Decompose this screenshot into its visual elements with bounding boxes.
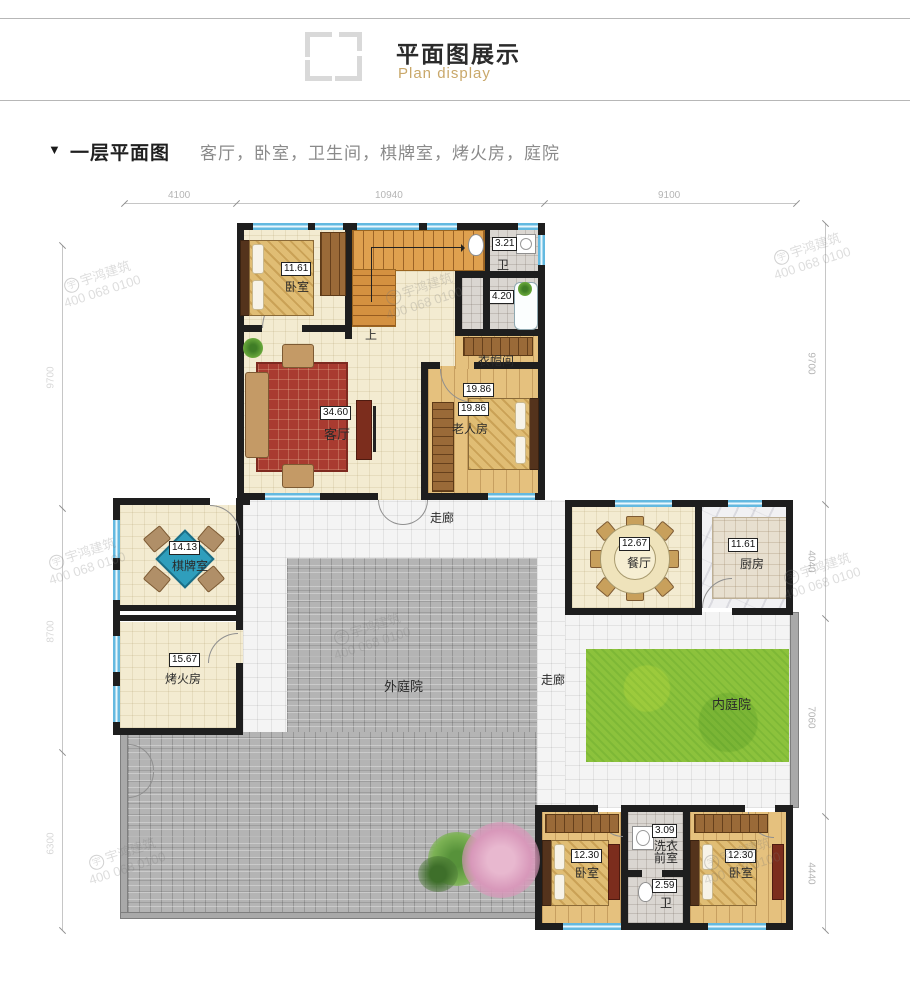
name-outer-yard: 外庭院 — [384, 676, 423, 695]
dim-top-2: 10940 — [375, 190, 403, 201]
corridor-left-strip-floor — [243, 558, 287, 734]
area-fire: 15.67 — [169, 653, 200, 667]
window — [427, 223, 457, 230]
laundry-washing-machine — [632, 826, 654, 850]
name-inner-yard: 内庭院 — [712, 694, 751, 713]
bedroom2-cabinet — [608, 844, 620, 900]
section-marker-icon: ▼ — [48, 142, 61, 157]
outer-yard-brick-mid — [287, 558, 537, 734]
page-title: 平面图展示 — [396, 35, 521, 69]
bath2-toilet — [638, 882, 653, 902]
living-sofa-long — [245, 372, 269, 458]
name-bath1: 卫 — [497, 256, 509, 273]
area-laundry: 3.09 — [652, 824, 677, 838]
dim-line-left — [62, 245, 63, 930]
wall — [345, 325, 352, 339]
stairs-arrow-line-v — [371, 247, 372, 302]
area-washroom: 4.20 — [489, 290, 514, 304]
living-armchair — [282, 344, 314, 368]
washroom-plant — [518, 282, 532, 296]
area-bedroom2: 12.30 — [571, 849, 602, 863]
window — [538, 235, 545, 265]
watermark: 宇宇鸿建筑 400 068 0100 — [767, 228, 852, 282]
stairs-arrow-line-h — [371, 247, 461, 248]
wall — [786, 805, 793, 930]
bed2-pillow — [554, 844, 565, 870]
dim-left-2: 8700 — [46, 620, 57, 642]
wall — [732, 608, 793, 615]
section-room-list: 客厅，卧室，卫生间，棋牌室，烤火房，庭院 — [200, 139, 560, 164]
window — [615, 500, 672, 507]
area-chess: 14.13 — [169, 541, 200, 555]
window — [488, 493, 535, 500]
name-corridor-mid: 走廊 — [541, 671, 565, 688]
wall — [345, 223, 352, 332]
area-bedroom1: 11.61 — [281, 262, 311, 276]
tree-foliage-pink — [462, 822, 540, 898]
bed1-pillow — [252, 280, 264, 310]
window — [253, 223, 308, 230]
name-corridor-top: 走廊 — [430, 509, 454, 526]
dim-top-1: 4100 — [168, 190, 190, 201]
wall — [236, 663, 243, 735]
window — [113, 570, 120, 600]
window — [113, 686, 120, 722]
name-bedroom2: 卧室 — [575, 864, 599, 881]
watermark: 宇宇鸿建筑 400 068 0100 — [57, 256, 142, 310]
bedroom2-wardrobe — [545, 814, 619, 833]
wall — [113, 498, 210, 505]
dim-top-3: 9100 — [658, 190, 680, 201]
wall — [628, 870, 642, 877]
name-laundry-2: 前室 — [654, 849, 678, 866]
section-title: 一层平面图 — [70, 138, 170, 165]
wall — [113, 615, 243, 621]
wall — [565, 500, 572, 615]
dim-line-top — [124, 203, 796, 204]
window — [708, 923, 766, 930]
inner-yard-grass — [586, 649, 789, 762]
dim-right-3: 7060 — [806, 706, 817, 728]
dim-right-4: 4440 — [806, 862, 817, 884]
window — [265, 493, 320, 500]
wall — [565, 608, 700, 615]
corridor-vertical-floor — [537, 558, 565, 832]
name-dining: 餐厅 — [627, 554, 651, 571]
living-armchair — [282, 464, 314, 488]
wall — [113, 605, 243, 611]
stairs-up-label: 上 — [365, 326, 377, 343]
name-kitchen: 厨房 — [740, 555, 764, 572]
area-living: 34.60 — [320, 406, 351, 420]
wall — [535, 805, 598, 812]
page-subtitle: Plan display — [398, 65, 491, 82]
wall — [695, 500, 702, 615]
area-dining: 12.67 — [619, 537, 650, 551]
bath1-toilet — [468, 234, 484, 256]
yard-left-wall — [120, 732, 128, 918]
dim-left-3: 6300 — [46, 832, 57, 854]
window — [357, 223, 419, 230]
name-bath2: 卫 — [660, 894, 672, 911]
floorplan-icon — [305, 28, 367, 86]
bed2-pillow — [554, 874, 565, 900]
area-bath1: 3.21 — [492, 237, 517, 251]
wall — [662, 870, 690, 877]
area-elder-1: 19.86 — [463, 383, 494, 397]
living-plant — [243, 338, 263, 358]
dim-right-1: 9700 — [806, 352, 817, 374]
tv-screen — [373, 406, 376, 452]
tv-cabinet — [356, 400, 372, 460]
bedroom3-wardrobe — [694, 814, 768, 833]
bedroom1-wardrobe — [320, 232, 346, 296]
bath1-washing-machine — [516, 234, 536, 254]
name-elder: 老人房 — [452, 420, 488, 437]
wall — [428, 362, 440, 369]
dim-tick — [793, 200, 800, 207]
name-living: 客厅 — [324, 424, 350, 443]
window — [563, 923, 621, 930]
yard-right-wall — [790, 612, 799, 808]
elder-bed-pillow — [515, 402, 526, 430]
window — [113, 636, 120, 672]
header-bottom-rule — [0, 100, 910, 101]
wall — [113, 728, 243, 735]
name-cloakroom: 衣帽间 — [478, 352, 514, 369]
wall — [455, 329, 545, 336]
area-bath2: 2.59 — [652, 879, 677, 893]
elder-bed-pillow — [515, 436, 526, 464]
window — [518, 223, 538, 230]
yard-bottom-wall — [120, 912, 540, 919]
window — [728, 500, 762, 507]
wall — [421, 362, 428, 500]
area-elder-2: 19.86 — [458, 402, 489, 416]
bed1-pillow — [252, 244, 264, 274]
name-fire: 烤火房 — [165, 670, 201, 687]
dim-left-1: 9700 — [46, 366, 57, 388]
wall — [683, 805, 690, 930]
area-kitchen: 11.61 — [728, 538, 758, 552]
name-chess: 棋牌室 — [172, 557, 208, 574]
elder-wardrobe — [432, 402, 454, 492]
header-top-rule — [0, 18, 910, 19]
wall — [237, 325, 262, 332]
tree-foliage-dark — [418, 856, 458, 892]
name-bedroom1: 卧室 — [285, 278, 309, 295]
window — [315, 223, 343, 230]
